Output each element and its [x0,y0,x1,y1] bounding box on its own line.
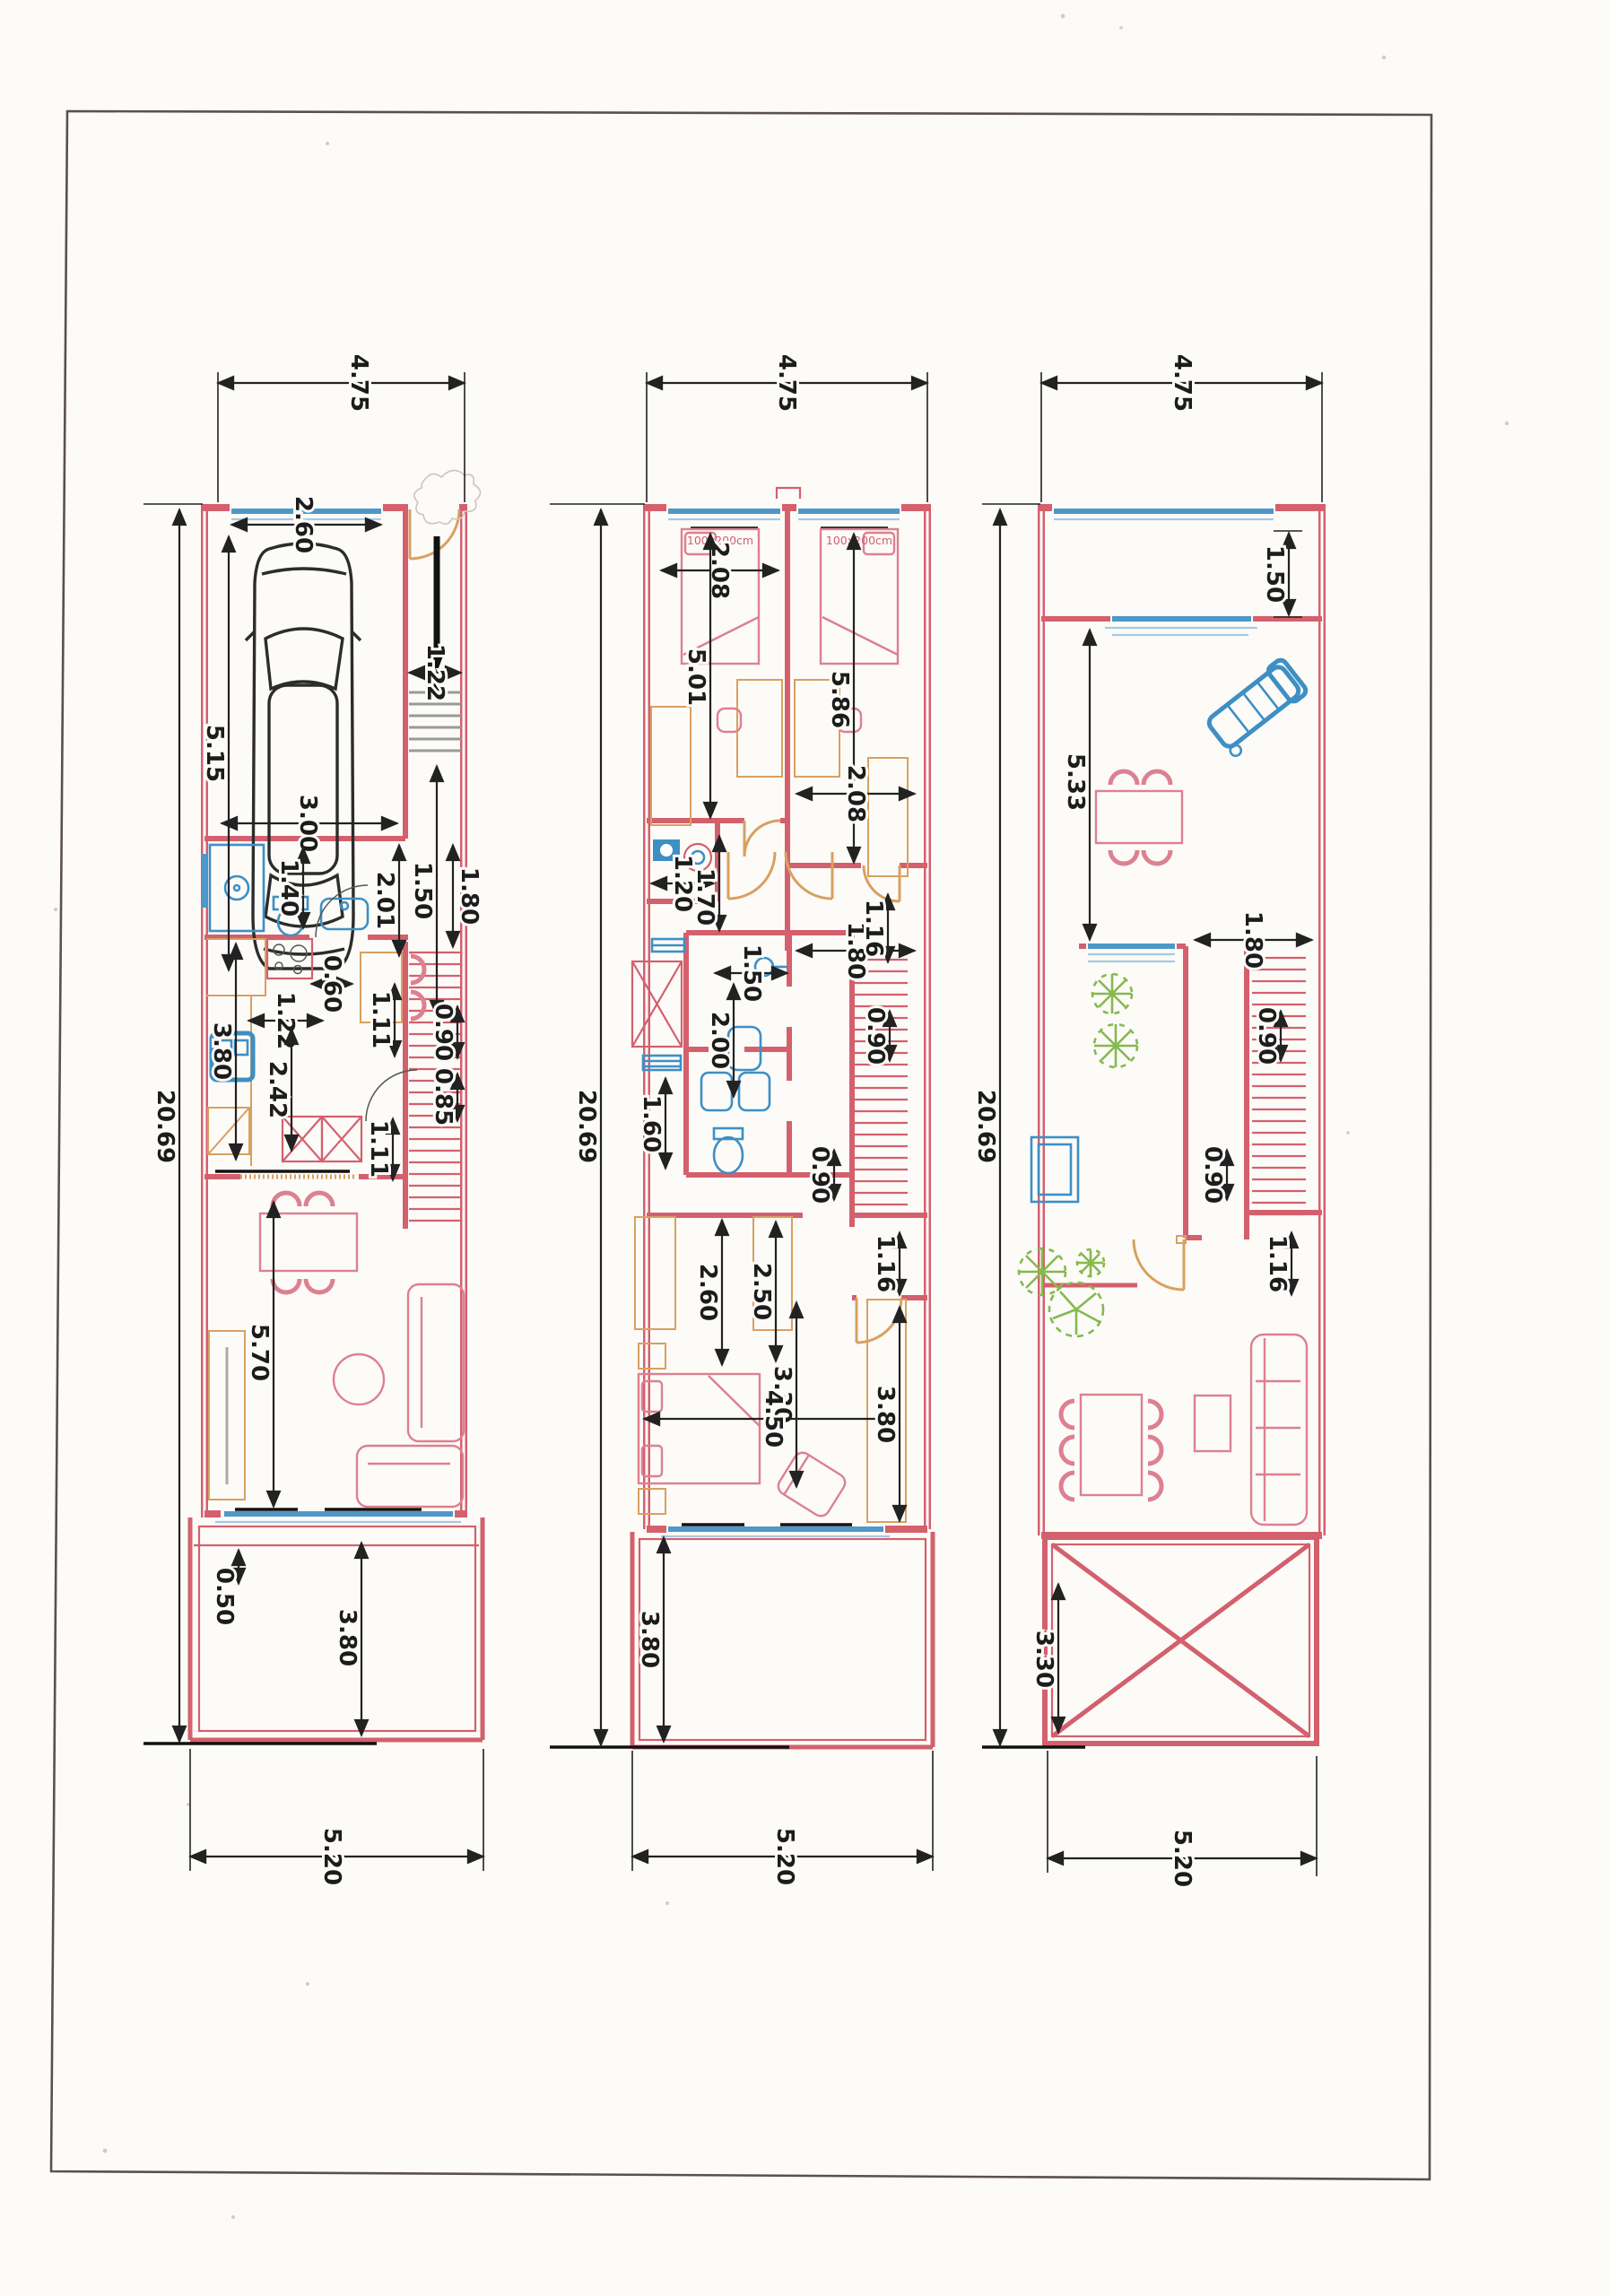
dim-label: 3.80 [872,1386,899,1443]
dim-label: 1.16 [872,1235,899,1292]
sofa-icon [1251,1335,1307,1525]
dim-label: 1.50 [409,862,436,919]
dim-label: 2.08 [842,765,869,822]
person-sketch-icon [414,470,481,524]
dim-label: 1.11 [365,1120,392,1178]
dim-label: 5.01 [683,648,709,706]
dimensions: 4.75 2.08 5.01 5.86 2.08 1.20 1.70 1.50 … [550,354,933,1885]
sun-lounger-icon [1204,657,1312,758]
dim-label: 1.40 [275,859,302,917]
stairs-icon [1252,958,1306,1214]
dim-label: 1.16 [860,900,887,957]
double-door-icon [728,821,900,901]
sideboard-icon [209,1331,245,1500]
first-floor-plan: 100x200cm 100x200cm [550,354,933,1885]
dim-label: 3.00 [294,795,321,852]
dining-set-icon [260,1193,357,1292]
dim-label: 2.60 [694,1264,721,1321]
bed-size-label: 100x200cm [826,534,892,547]
walls [632,488,933,1747]
dim-label: 2.50 [748,1263,775,1320]
dim-label: 1.50 [738,944,765,1002]
dim-label: 1.11 [367,991,394,1048]
dim-label: 20.69 [972,1090,999,1163]
dim-label: 1.60 [638,1095,665,1152]
dim-label: 1.70 [691,868,718,926]
dim-label: 0.90 [1253,1007,1280,1065]
dim-label: 20.69 [573,1090,600,1163]
dim-label: 4.75 [1169,354,1196,412]
dim-label: 4.50 [760,1390,787,1448]
dim-label: 5.20 [1169,1830,1196,1887]
dim-label: 5.86 [826,671,853,728]
dim-label: 1.22 [422,644,448,701]
dim-label: 1.50 [1261,545,1288,603]
dimensions: 4.75 2.60 5.15 3.00 1.22 1.50 1.40 2.01 … [144,354,483,1885]
dim-label: 4.75 [773,354,800,412]
lounge-table-icon [1061,1395,1231,1500]
dim-label: 2.60 [290,496,317,553]
dim-label: 3.80 [636,1611,663,1668]
stairs-icon [854,960,908,1216]
dim-label: 4.75 [345,354,372,412]
windows [1031,499,1275,1202]
dim-label: 1.22 [272,992,299,1049]
dim-label: 20.69 [152,1090,178,1163]
dim-label: 2.01 [371,872,398,929]
dim-label: 5.20 [318,1828,345,1885]
dim-label: 3.80 [334,1609,361,1666]
closet-door-icon [857,1298,901,1343]
dim-label: 3.30 [1031,1631,1057,1688]
dim-label: 5.20 [771,1828,798,1885]
dim-label: 5.33 [1062,753,1089,811]
sofa-icon [357,1284,464,1507]
master-bed-icon [639,1344,760,1514]
dim-label: 3.80 [208,1022,235,1080]
dim-label: 0.90 [430,1004,457,1061]
roof-terrace-plan: 4.75 1.50 5.33 1.80 0.90 0.90 1.16 3.30 … [972,354,1325,1887]
terrace-table-icon [1096,771,1182,864]
floor-plan-sheet: 4.75 2.60 5.15 3.00 1.22 1.50 1.40 2.01 … [0,0,1609,2296]
terrace-door-icon [1134,1236,1186,1290]
side-table-icon [334,1354,384,1405]
dim-label: 0.90 [1199,1146,1226,1204]
light-well-icon [632,961,682,1047]
dim-label: 0.90 [806,1146,833,1204]
dim-label: 0.50 [211,1568,238,1625]
dim-label: 1.16 [1264,1235,1291,1292]
dim-label: 0.60 [318,955,345,1013]
dim-label: 1.80 [1239,911,1266,969]
dim-label: 5.70 [246,1324,273,1381]
dim-label: 0.90 [862,1007,889,1065]
dim-label: 0.85 [430,1068,457,1126]
dim-label: 1.80 [456,867,483,925]
dim-label: 2.00 [706,1012,733,1069]
bed-icon: 100x200cm [821,529,898,664]
ground-floor-plan: 4.75 2.60 5.15 3.00 1.22 1.50 1.40 2.01 … [144,354,483,1885]
armchair-icon [775,1449,848,1519]
dim-label: 5.15 [201,725,228,782]
dim-label: 2.42 [264,1061,291,1118]
